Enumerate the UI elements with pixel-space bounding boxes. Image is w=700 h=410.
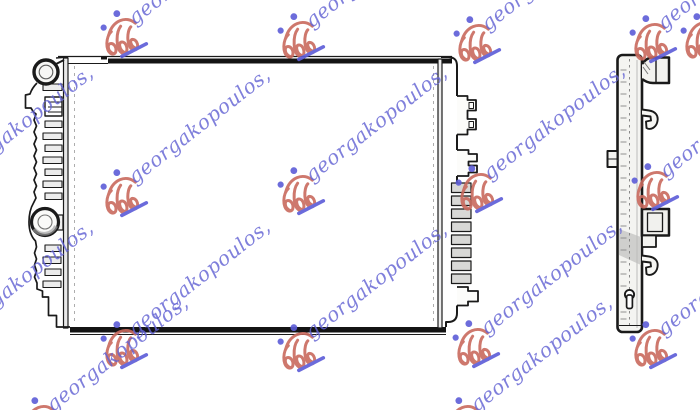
watermark-text: georgakopoulos, [0, 60, 96, 184]
watermark-text: georgakopoulos, [300, 217, 450, 341]
watermark-text: georgakopoulos, [654, 56, 700, 180]
watermark-text: georgakopoulos, [300, 0, 450, 30]
drawing-canvas: georgakopoulos, georgakopoulos, [0, 0, 700, 410]
watermark-layer: georgakopoulos, georgakopoulos, [0, 0, 700, 410]
watermark-text: georgakopoulos, [652, 214, 700, 338]
watermark-text: georgakopoulos, [0, 215, 96, 339]
watermark-text: georgakopoulos, [123, 0, 273, 27]
watermark-text: georgakopoulos, [300, 60, 450, 184]
watermark-text: georgakopoulos, [476, 0, 626, 33]
watermark-text: georgakopoulos, [0, 0, 96, 27]
watermark-text: georgakopoulos, [478, 58, 628, 182]
watermark-text: georgakopoulos, [123, 62, 273, 186]
watermark-text: georgakopoulos, [41, 290, 191, 410]
